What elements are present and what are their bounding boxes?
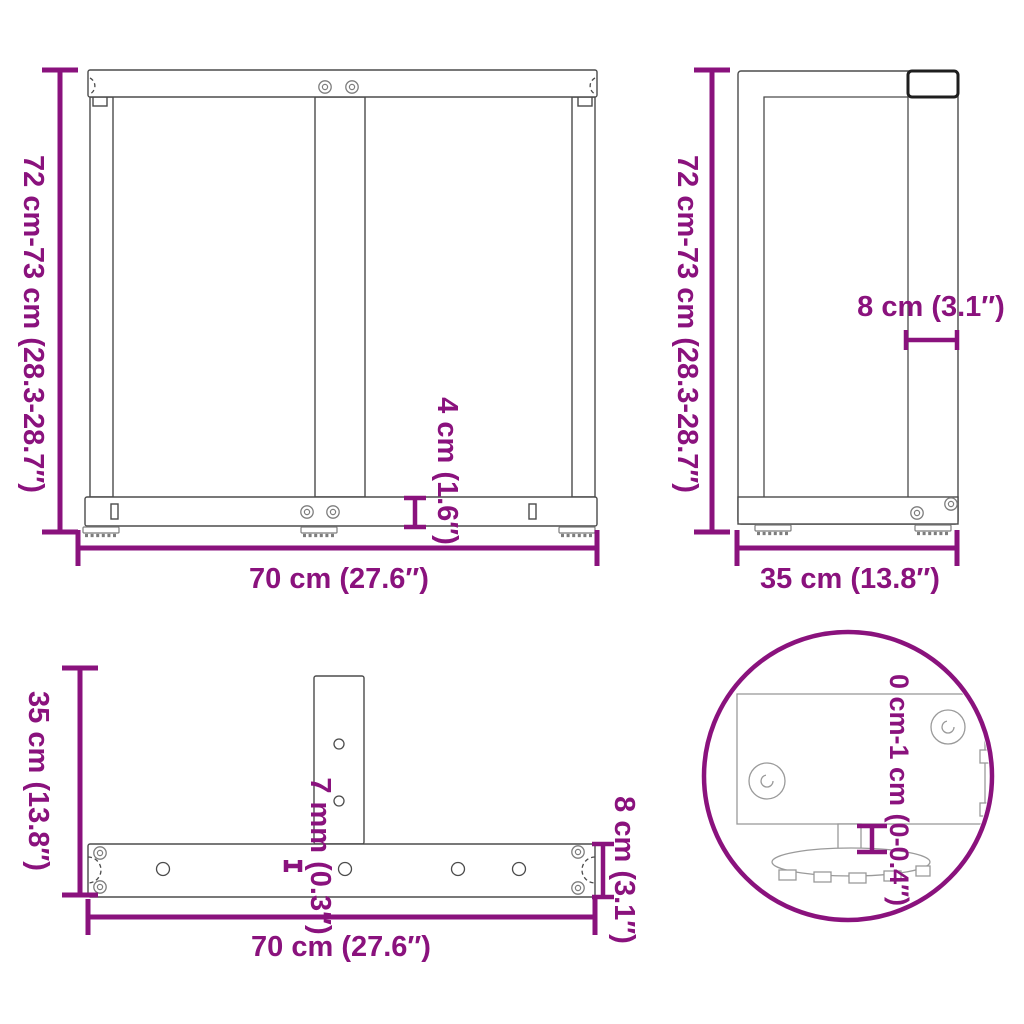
top-bar (88, 844, 595, 897)
top-width-label: 70 cm (27.6″) (251, 931, 431, 963)
front-left-tab (93, 97, 107, 106)
front-width-dimension (78, 530, 597, 566)
side-height-label: 72 cm-73 cm (28.3-28.7″) (671, 155, 703, 493)
top-thickness-label: 7 mm (0.3″) (304, 777, 336, 934)
side-leg-top-cap (908, 71, 958, 97)
front-bottom-bar (85, 497, 597, 526)
detail-adjust-label: 0 cm-1 cm (0-0.4″) (884, 674, 914, 906)
top-bar-width-label: 8 cm (3.1″) (608, 796, 640, 944)
top-width-dimension (88, 899, 595, 935)
front-left-post (90, 97, 113, 497)
front-view: 72 cm-73 cm (28.3-28.7″) 70 cm (27.6″) 4… (17, 70, 597, 595)
detail-foot-notch (916, 866, 930, 876)
detail-foot-notch (849, 873, 866, 883)
front-top-plate (88, 70, 597, 97)
side-leg-width-label: 8 cm (3.1″) (857, 291, 1005, 323)
front-width-label: 70 cm (27.6″) (249, 563, 429, 595)
front-bar-height-label: 4 cm (1.6″) (431, 397, 463, 545)
foot-detail-drawing (737, 694, 992, 883)
side-bottom-bar (738, 497, 958, 524)
front-bar-right-tab (529, 504, 536, 519)
front-center-column (315, 97, 365, 497)
detail-leg-plate (737, 694, 985, 824)
front-height-label: 72 cm-73 cm (28.3-28.7″) (17, 155, 49, 493)
detail-foot-notch (779, 870, 796, 880)
top-depth-label: 35 cm (13.8″) (22, 691, 54, 871)
front-right-post (572, 97, 595, 497)
detail-foot-notch (814, 872, 831, 882)
side-depth-label: 35 cm (13.8″) (760, 563, 940, 595)
product-dimension-diagram: 72 cm-73 cm (28.3-28.7″) 70 cm (27.6″) 4… (0, 0, 1024, 1024)
side-view: 72 cm-73 cm (28.3-28.7″) 35 cm (13.8″) 8… (671, 70, 1005, 595)
front-right-tab (578, 97, 592, 106)
front-bar-left-tab (111, 504, 118, 519)
top-view: 35 cm (13.8″) 70 cm (27.6″) 7 mm (0.3″) … (22, 668, 640, 963)
diagram-canvas: 72 cm-73 cm (28.3-28.7″) 70 cm (27.6″) 4… (0, 0, 1024, 1024)
foot-detail-view: 0 cm-1 cm (0-0.4″) (704, 632, 992, 920)
side-depth-dimension (737, 530, 957, 566)
